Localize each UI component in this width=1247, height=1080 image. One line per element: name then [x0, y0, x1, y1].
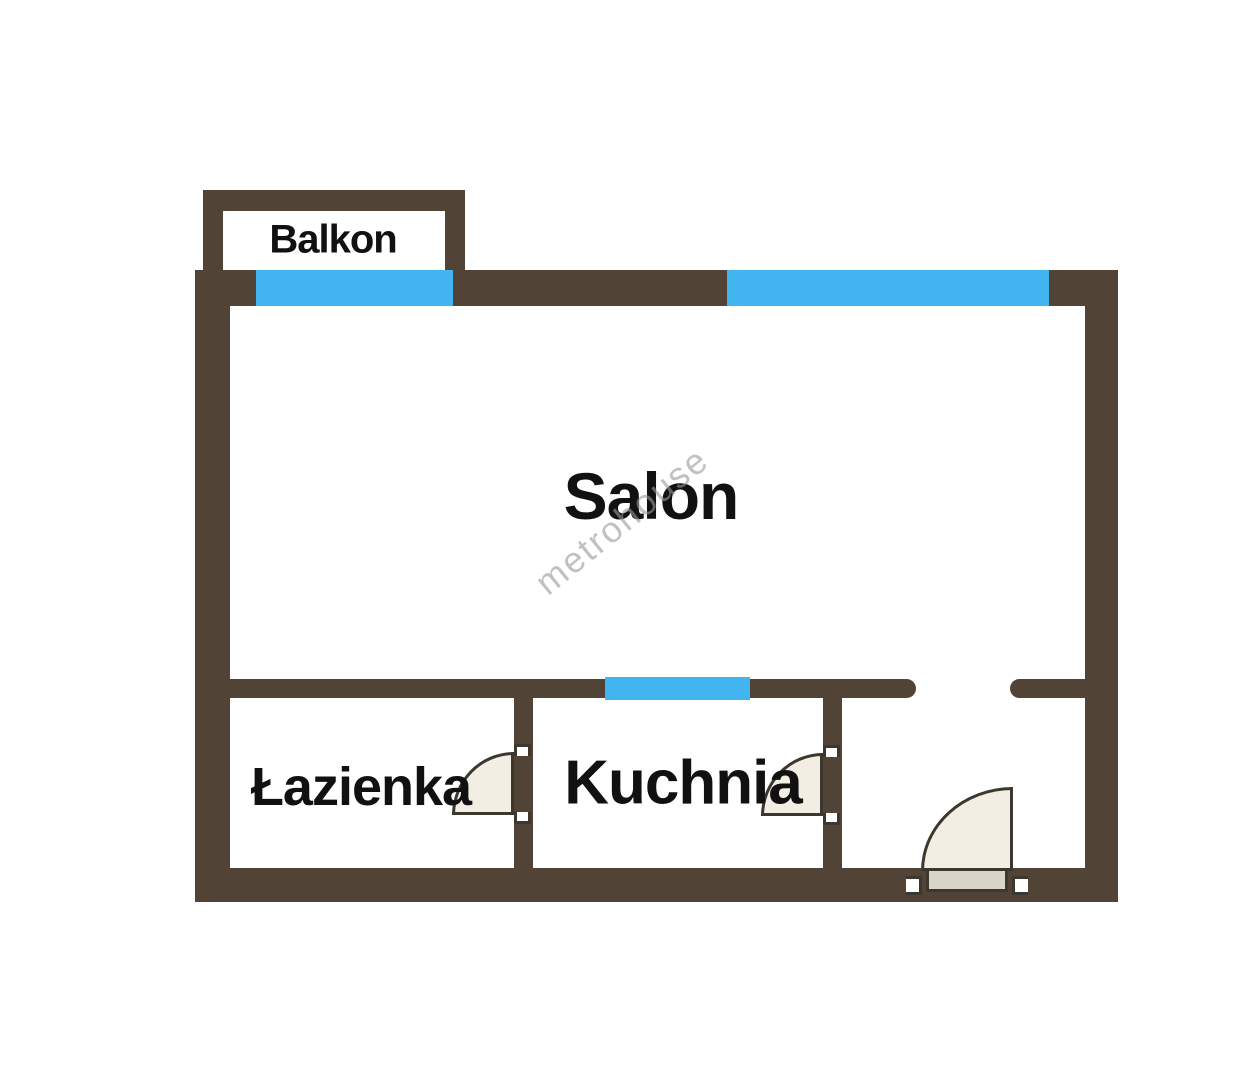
bathroom-door-jamb-bottom	[514, 812, 531, 824]
bathroom-door-jamb-top	[514, 744, 531, 756]
wall-bathroom-kitchen	[514, 698, 533, 868]
balcony-wall-right	[445, 190, 465, 270]
kitchen-label: Kuchnia	[564, 748, 802, 819]
balcony-wall-left	[203, 190, 223, 270]
balcony-label: Balkon	[269, 218, 396, 263]
entrance-door	[921, 787, 1013, 871]
outer-wall-right	[1085, 270, 1118, 902]
interior-wall-horizontal	[230, 679, 916, 698]
bathroom-label: Łazienka	[251, 756, 471, 818]
balcony-window	[256, 270, 453, 306]
kitchen-door-jamb-top	[823, 745, 840, 757]
kitchen-window	[605, 677, 750, 700]
entrance-door-jamb-right	[1012, 876, 1028, 895]
wall-kitchen-hall	[823, 698, 842, 868]
outer-wall-left	[195, 270, 230, 902]
interior-wall-stub-right	[1010, 679, 1085, 698]
entrance-door-jamb-left	[906, 876, 922, 895]
kitchen-door-jamb-bottom	[823, 813, 840, 825]
living-room-window	[727, 270, 1049, 306]
balcony-wall-top	[203, 190, 465, 211]
floor-plan: Balkon Salon Łazienka Kuchnia metrohouse	[0, 0, 1247, 1080]
